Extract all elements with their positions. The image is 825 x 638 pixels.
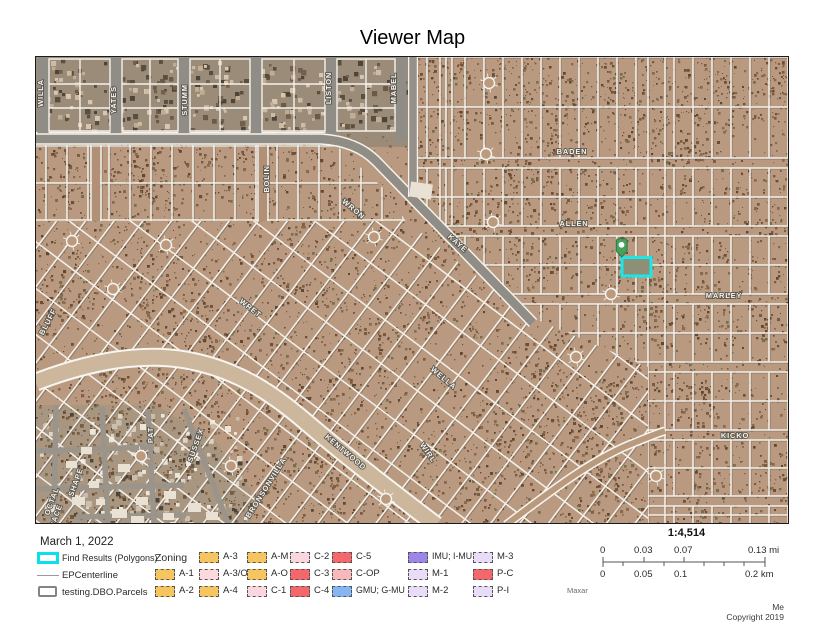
svg-text:KICKO: KICKO: [721, 431, 749, 440]
svg-text:LISTON: LISTON: [324, 72, 333, 104]
svg-text:BADEN: BADEN: [557, 147, 588, 156]
svg-text:ALLEN: ALLEN: [560, 219, 589, 228]
svg-text:STUMM: STUMM: [180, 84, 189, 116]
svg-text:BOLIN: BOLIN: [262, 165, 271, 192]
svg-text:PAT: PAT: [146, 427, 155, 443]
svg-text:YATES: YATES: [109, 86, 118, 114]
svg-text:MABEL: MABEL: [389, 73, 398, 104]
svg-text:WILLA: WILLA: [36, 79, 45, 107]
svg-text:MARLEY: MARLEY: [706, 291, 742, 300]
